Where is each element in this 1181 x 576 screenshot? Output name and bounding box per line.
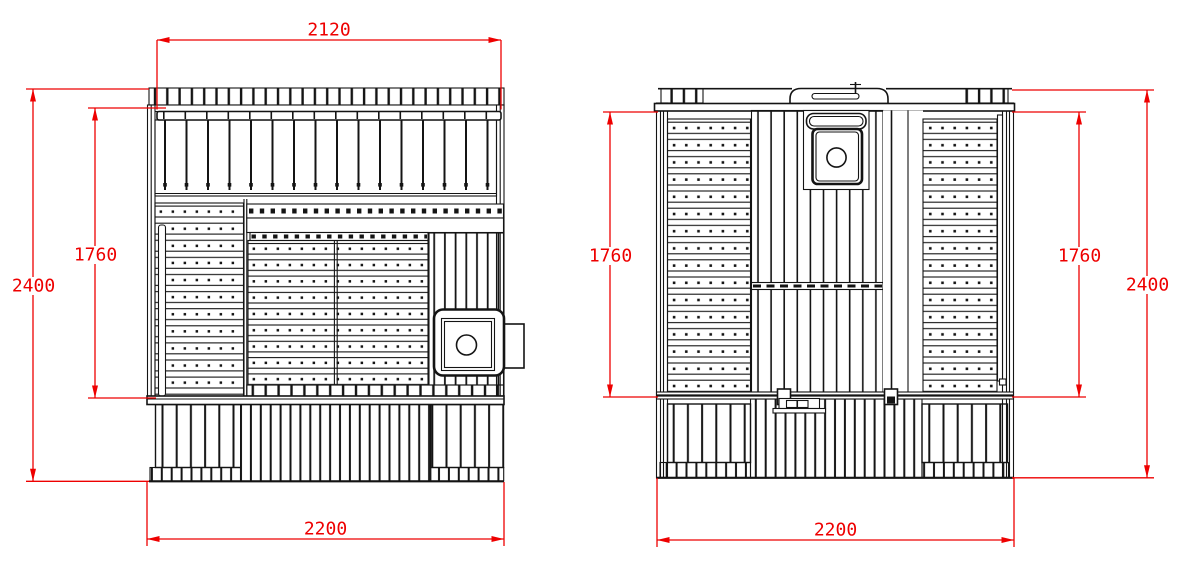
side-panel-left-slats [668,119,751,392]
dim-overall-height-front: 2400 [11,89,149,481]
left-backrest-panel [155,203,244,396]
base-block-right-side [922,404,1008,463]
dim-label-overall-height-side: 2400 [1126,275,1169,296]
roof-slab [655,104,1015,112]
side-panel-right-slats [923,119,997,392]
dim-label-interior-height-front: 1760 [74,245,117,266]
roof-fascia [149,105,504,112]
sauna-elevation-drawing: 2120 2400 1760 2200 1760 1760 [0,0,1181,576]
mid-rail [752,283,884,290]
base-strip-left [150,468,241,482]
technical-drawing-page: 2120 2400 1760 2200 1760 1760 [0,0,1181,576]
stove-door-glass [457,335,477,355]
dim-overall-height-side: 2400 [1012,90,1170,478]
stove-feed-tunnel [504,324,524,368]
base-left-view [149,405,504,482]
roof-corner-slats-left [661,89,703,103]
dim-interior-height-side-left: 1760 [588,112,658,397]
dim-base-width-front: 2200 [147,482,504,546]
base-side-view [656,399,1014,478]
dim-interior-height-side-right: 1760 [1012,112,1102,397]
dim-label-top-width: 2120 [307,20,350,41]
bench-front [248,241,428,386]
backrest-post [159,225,166,396]
roof-corner-slats-right [966,89,1008,103]
base-center-slats [241,405,431,482]
bench-slats [248,241,428,386]
side-elevation-view [655,82,1015,478]
side-corner-board-left [657,103,668,478]
sill-rail [147,396,504,405]
stove-front [434,310,524,376]
dim-label-interior-height-side-left: 1760 [589,246,632,267]
backrest-slats [155,203,244,396]
stove-side [804,111,870,190]
dim-base-width-side: 2200 [657,478,1014,547]
dim-label-base-width-side: 2200 [814,520,857,541]
base-block-right [431,405,504,468]
stove-tank [807,114,867,130]
dim-label-base-width-front: 2200 [304,519,347,540]
base-strip-left-side [660,463,751,478]
roof-side [658,82,1012,104]
stove-door-glass-side [827,148,846,167]
door-step [773,399,826,414]
top-plate [157,112,501,121]
corner-trim-board [998,115,1003,381]
kickboard-slats [247,385,504,396]
base-strip-right [431,468,504,482]
front-elevation-view [147,88,524,481]
upper-wall-slats [155,120,497,196]
roof-band [149,88,504,112]
base-block-left [156,405,241,468]
dim-label-interior-height-side-right: 1760 [1058,246,1101,267]
base-block-left-side [668,404,751,463]
base-strip-right-side [922,463,1009,478]
roof-slats [149,88,504,105]
chimney-cap [812,94,859,100]
dim-label-overall-height-front: 2400 [12,276,55,297]
door-frame [883,111,923,393]
